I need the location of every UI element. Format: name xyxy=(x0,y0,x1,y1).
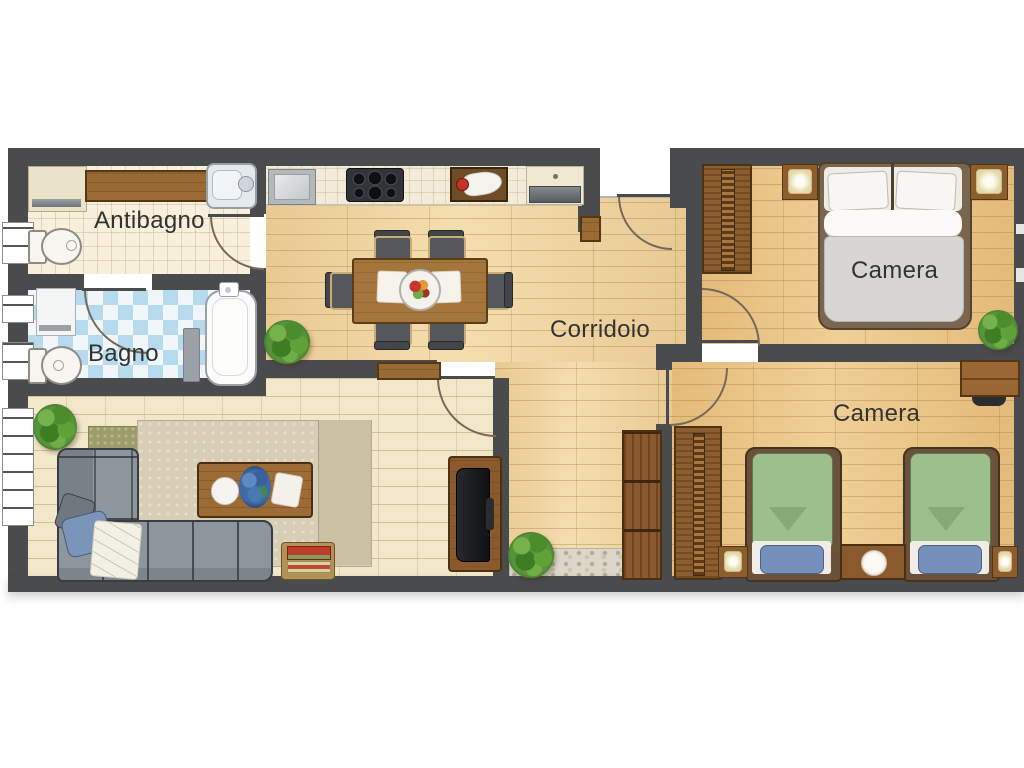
book xyxy=(287,561,331,573)
chair-back xyxy=(374,341,410,350)
cooktop xyxy=(346,168,404,202)
double-bed xyxy=(818,162,972,330)
wardrobe-rail xyxy=(693,433,706,576)
washing-machine xyxy=(36,288,76,336)
window-mark-right-1 xyxy=(1016,224,1024,234)
pillow xyxy=(827,170,889,211)
fruit xyxy=(408,278,432,302)
desk xyxy=(960,360,1020,397)
wall-bedroom1-left xyxy=(686,166,702,344)
room-label-corridoio: Corridoio xyxy=(550,316,650,344)
bed-center-line xyxy=(891,164,894,210)
flower-bowl-icon xyxy=(861,550,887,576)
lamp-stool xyxy=(718,546,748,578)
knife-handle xyxy=(456,178,469,191)
book xyxy=(287,546,331,560)
lamp-icon xyxy=(976,169,1002,194)
lamp-stool xyxy=(992,546,1018,578)
bath-mat xyxy=(183,328,200,382)
chair-back xyxy=(504,272,513,308)
kitchen-sink-unit xyxy=(268,169,316,205)
nightstand xyxy=(970,164,1008,200)
center-nightstand xyxy=(840,544,906,580)
lamp-icon xyxy=(998,551,1012,572)
window-mark-right-2 xyxy=(1016,268,1024,282)
floor-plan-image: Antibagno Bagno Corridoio Camera Camera xyxy=(0,0,1024,768)
duvet-green xyxy=(910,453,991,550)
sink-basin xyxy=(274,174,310,200)
chair-back xyxy=(428,341,464,350)
plate xyxy=(211,477,239,505)
cabinet-front xyxy=(529,186,581,203)
tv-mount xyxy=(486,498,494,530)
lamp-icon xyxy=(724,551,742,572)
door-leaf-antibagno xyxy=(208,214,264,217)
window-living xyxy=(2,408,34,526)
shower-tub xyxy=(205,290,257,386)
door-leaf-bedroom2 xyxy=(666,366,669,426)
fruit-plate xyxy=(399,269,441,311)
room-label-camera-1: Camera xyxy=(851,257,938,285)
room-label-antibagno: Antibagno xyxy=(94,207,205,235)
cutting-board xyxy=(450,167,508,202)
tub-inner xyxy=(212,298,248,376)
washer-panel xyxy=(39,325,71,331)
plant-living xyxy=(33,404,77,450)
sheet-fold xyxy=(824,210,962,238)
wardrobe-bedroom2 xyxy=(674,426,722,580)
room-label-camera-2: Camera xyxy=(833,400,920,428)
kitchen-base-cabinet xyxy=(526,166,584,205)
antibagno-counter xyxy=(85,170,211,202)
entrance-recess xyxy=(600,148,670,198)
wardrobe-rail xyxy=(721,169,734,271)
window-bagno-1 xyxy=(2,295,34,323)
wall-bedroom-divider-a xyxy=(656,344,702,362)
lamp-icon xyxy=(788,169,812,194)
toilet-flush-icon xyxy=(66,240,77,251)
toilet-flush-icon xyxy=(53,360,64,371)
toilet-bowl-bagno xyxy=(41,346,82,385)
antibagno-sink xyxy=(206,163,257,209)
faucet-dot xyxy=(225,287,231,293)
pillow-blue xyxy=(918,545,982,574)
nightstand xyxy=(782,164,818,200)
single-bed xyxy=(903,447,1000,582)
pillow xyxy=(895,170,957,211)
side-table xyxy=(281,542,335,580)
plant-corridor xyxy=(508,532,554,578)
tv xyxy=(456,468,490,562)
corridor-cabinet xyxy=(622,430,662,580)
duvet-fold xyxy=(927,507,965,531)
wardrobe-bedroom1 xyxy=(702,164,752,274)
faucet-icon xyxy=(238,176,254,192)
single-bed xyxy=(745,447,842,582)
sofa-blanket xyxy=(90,520,143,580)
radiator-dining xyxy=(377,362,441,380)
napkin xyxy=(270,472,303,508)
cabinet-knob xyxy=(553,174,558,179)
toilet-bowl-antibagno xyxy=(41,228,82,265)
cabinet-handle xyxy=(32,199,81,207)
radiator-entry xyxy=(580,216,601,242)
room-label-bagno: Bagno xyxy=(88,340,159,368)
door-leaf-bagno xyxy=(82,288,146,291)
door-leaf-living xyxy=(435,376,495,379)
duvet-green xyxy=(752,453,833,550)
door-leaf-bedroom1 xyxy=(702,340,758,343)
wall-top-left xyxy=(8,148,578,166)
plant-bedroom1 xyxy=(978,310,1018,350)
duvet-fold xyxy=(769,507,807,531)
table-plant-icon xyxy=(239,466,271,508)
tub-faucet-icon xyxy=(219,282,239,297)
plant-kitchen xyxy=(264,320,310,364)
door-leaf-entrance xyxy=(617,194,672,197)
pillow-blue xyxy=(760,545,824,574)
antibagno-cabinet xyxy=(28,166,87,212)
